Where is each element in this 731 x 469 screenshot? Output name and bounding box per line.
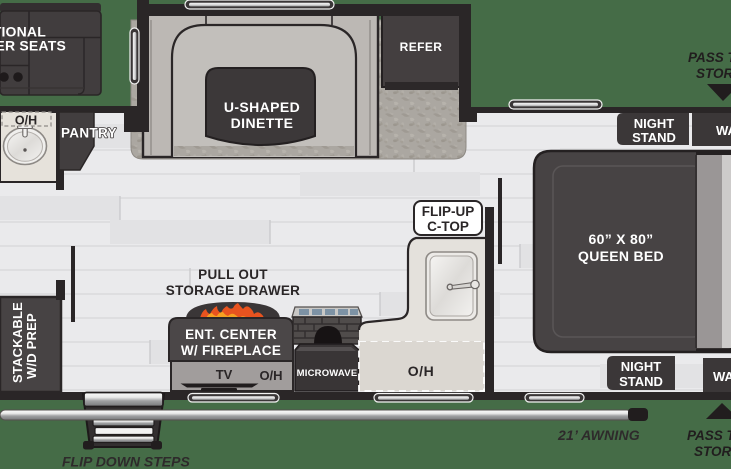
- svg-text:W/D PREP: W/D PREP: [24, 313, 39, 379]
- svg-text:U-SHAPED: U-SHAPED: [224, 99, 300, 115]
- svg-text:NIGHT: NIGHT: [621, 359, 662, 374]
- svg-text:STAND: STAND: [619, 374, 663, 389]
- svg-text:C-TOP: C-TOP: [427, 219, 469, 234]
- svg-text:THEATER SEATS: THEATER SEATS: [0, 38, 66, 54]
- svg-text:60” X 80”: 60” X 80”: [589, 231, 654, 247]
- svg-text:PASS T: PASS T: [688, 50, 731, 65]
- svg-text:TV: TV: [216, 367, 233, 382]
- svg-text:QUEEN BED: QUEEN BED: [578, 248, 664, 264]
- svg-text:FLIP DOWN STEPS: FLIP DOWN STEPS: [62, 454, 190, 469]
- svg-text:REFER: REFER: [400, 40, 443, 54]
- svg-text:STORAGE DRAWER: STORAGE DRAWER: [166, 283, 300, 298]
- svg-text:STOR: STOR: [696, 66, 731, 81]
- svg-text:MICROWAVE: MICROWAVE: [297, 368, 358, 379]
- svg-text:DINETTE: DINETTE: [231, 115, 294, 131]
- svg-text:W/ FIREPLACE: W/ FIREPLACE: [181, 343, 281, 358]
- svg-text:STOR: STOR: [694, 444, 731, 459]
- svg-text:WA: WA: [713, 369, 731, 384]
- svg-text:O/H: O/H: [408, 363, 434, 379]
- svg-text:PANTRY: PANTRY: [61, 126, 117, 141]
- svg-text:WA: WA: [716, 123, 731, 138]
- svg-text:O/H: O/H: [259, 368, 282, 383]
- svg-text:STACKABLE: STACKABLE: [10, 302, 25, 383]
- svg-text:O/H: O/H: [15, 114, 37, 128]
- svg-text:STAND: STAND: [632, 130, 676, 145]
- svg-text:PULL OUT: PULL OUT: [198, 267, 268, 282]
- svg-text:NIGHT: NIGHT: [634, 116, 675, 131]
- svg-text:PASS T: PASS T: [687, 428, 731, 443]
- svg-text:21’ AWNING: 21’ AWNING: [557, 427, 640, 443]
- svg-text:ENT. CENTER: ENT. CENTER: [185, 327, 277, 342]
- svg-text:FLIP-UP: FLIP-UP: [422, 204, 475, 219]
